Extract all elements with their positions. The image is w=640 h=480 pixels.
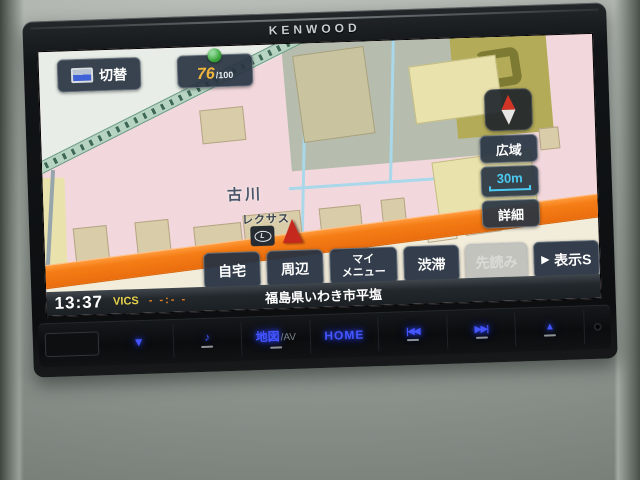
display-icon [71,67,93,83]
note-icon: ♪ [204,332,210,344]
current-address: 福島県いわき市平塩 [265,284,383,307]
home-destination-button[interactable]: 自宅 [203,251,261,290]
lookahead-button-disabled: 先読み [465,242,528,281]
compass-north-needle-icon [501,94,515,109]
gps-globe-icon [207,48,221,62]
compass-button[interactable] [484,88,533,132]
traffic-button[interactable]: 渋滞 [403,244,460,283]
eject-icon: ▲ [545,321,555,332]
button-notch [407,338,419,340]
navigation-screen[interactable]: 古川 レクサス L 切替 76 /100 広域 30m 詳細 自宅 周辺 [37,33,602,317]
eject-button[interactable]: ▲ [516,310,586,346]
gps-max: /100 [216,69,234,82]
gps-value: 76 [197,66,215,83]
building [199,106,246,144]
previous-track-button[interactable]: |◀◀ [379,315,449,351]
next-icon: ▶▶| [474,323,488,334]
lexus-logo-icon: L [250,226,275,247]
down-arrow-icon: ▼ [133,335,145,349]
vics-time: - -:- - [149,293,188,306]
building [292,46,375,143]
screen-switch-button[interactable]: 切替 [57,57,142,93]
audio-button[interactable]: ♪ [173,322,243,358]
display-s-button[interactable]: ▶ 表示S [533,240,600,279]
sd-card-slot[interactable] [45,331,100,357]
scale-bar-icon [489,185,531,191]
zoom-out-button[interactable]: 広域 [479,134,538,164]
next-track-button[interactable]: ▶▶| [447,313,517,349]
button-notch [201,346,213,348]
microphone-hole [585,324,611,329]
current-position-cursor [282,219,303,244]
dashboard-right-trim [614,0,640,480]
zoom-in-button[interactable]: 詳細 [481,199,540,229]
map-av-button[interactable]: 地図 /AV [241,319,311,355]
play-triangle-icon: ▶ [541,254,549,265]
scale-value: 30m [496,171,522,185]
home-button[interactable]: HOME [310,317,380,353]
compass-south-needle-icon [501,109,515,124]
gps-quality-badge[interactable]: 76 /100 [176,53,253,89]
prev-icon: |◀◀ [406,325,420,336]
building [538,126,560,150]
button-notch [270,346,282,348]
clock: 13:37 [54,292,103,314]
button-notch [476,336,488,338]
navigation-head-unit: KENWOOD 古川 レクサス L [22,2,617,377]
dashboard-left-trim [0,0,24,480]
volume-down-button[interactable]: ▼ [104,324,174,360]
vics-indicator: VICS [113,295,139,308]
button-notch [544,334,556,336]
switch-label: 切替 [99,64,128,85]
nearby-search-button[interactable]: 周辺 [266,249,324,288]
map-scale-indicator[interactable]: 30m [480,165,539,198]
place-label: 古川 [227,183,264,205]
